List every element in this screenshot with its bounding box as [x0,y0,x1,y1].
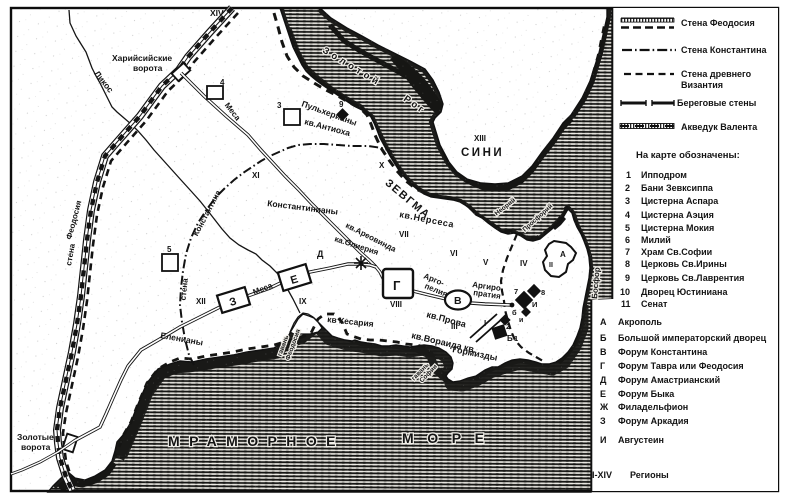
svg-text:IV: IV [520,259,528,268]
svg-text:И: И [532,300,537,309]
svg-text:А: А [560,250,566,259]
svg-text:Акведук Валента: Акведук Валента [681,122,758,132]
svg-text:Церковь Св.Ирины: Церковь Св.Ирины [641,259,727,269]
svg-text:Д: Д [317,249,324,259]
svg-text:Д: Д [600,375,607,385]
svg-text:5: 5 [167,245,172,254]
svg-text:Г: Г [393,278,401,293]
svg-text:X: X [379,161,385,170]
svg-text:7: 7 [625,247,630,257]
svg-text:Цистерна Аэция: Цистерна Аэция [641,210,714,220]
svg-text:Акрополь: Акрополь [618,317,662,327]
svg-text:ворота: ворота [21,442,51,452]
svg-text:XII: XII [196,297,206,306]
svg-text:4: 4 [625,210,630,220]
svg-text:11: 11 [621,299,631,309]
svg-text:6: 6 [625,235,630,245]
svg-text:1: 1 [626,170,631,180]
svg-text:XIII: XIII [474,134,486,143]
svg-text:ворота: ворота [133,63,163,73]
svg-text:МРАМОРНОЕ: МРАМОРНОЕ [168,433,342,449]
svg-text:II: II [549,262,553,269]
svg-text:Ж: Ж [599,402,609,412]
svg-text:8: 8 [541,288,545,297]
svg-text:3: 3 [625,196,630,206]
svg-text:и: и [519,317,523,324]
svg-text:Дворец Юстиниана: Дворец Юстиниана [641,287,728,297]
svg-text:Регионы: Регионы [630,470,669,480]
svg-text:Церковь Св.Лаврентия: Церковь Св.Лаврентия [641,273,744,283]
svg-text:В: В [600,347,607,357]
svg-text:9: 9 [625,273,630,283]
svg-text:I: I [484,319,486,328]
svg-text:Ипподром: Ипподром [641,170,687,180]
svg-text:VII: VII [399,230,409,239]
svg-text:Е: Е [600,389,606,399]
svg-text:8: 8 [625,259,630,269]
svg-text:Форум Тавра или Феодосия: Форум Тавра или Феодосия [618,361,744,371]
svg-text:И: И [600,435,606,445]
svg-text:10: 10 [620,287,630,297]
svg-text:2: 2 [625,183,630,193]
svg-text:Форум Быка: Форум Быка [618,389,675,399]
svg-text:Цистерна Аспара: Цистерна Аспара [641,196,719,206]
svg-text:Цистерна Мокия: Цистерна Мокия [641,223,714,233]
svg-text:Стена Феодосия: Стена Феодосия [681,18,755,28]
svg-text:XI: XI [252,171,260,180]
svg-text:Милий: Милий [641,235,671,245]
svg-text:А: А [600,317,607,327]
svg-text:Сенат: Сенат [641,299,668,309]
svg-text:Стена Константина: Стена Константина [681,45,768,55]
svg-text:Стена древнего: Стена древнего [681,69,752,79]
svg-text:Береговые стены: Береговые стены [677,98,757,108]
svg-text:Большой императорский дворец: Большой императорский дворец [618,333,767,343]
svg-text:2: 2 [506,322,510,331]
svg-text:Филадельфион: Филадельфион [618,402,688,412]
svg-text:9: 9 [339,100,344,109]
svg-text:VIII: VIII [390,300,402,309]
svg-text:V: V [483,258,489,267]
svg-text:XIV: XIV [210,8,224,18]
svg-text:5: 5 [625,223,630,233]
svg-text:Августеин: Августеин [618,435,664,445]
svg-text:В: В [454,295,462,307]
svg-text:Харийсийские: Харийсийские [112,53,172,63]
svg-text:На карте обозначены:: На карте обозначены: [636,150,740,161]
svg-text:7: 7 [514,287,518,296]
svg-text:СИНИ: СИНИ [461,147,504,159]
svg-text:Форум Аркадия: Форум Аркадия [618,416,689,426]
svg-text:Б: Б [600,333,607,343]
svg-text:Храм Св.Софии: Храм Св.Софии [641,247,712,257]
svg-text:Форум Константина: Форум Константина [618,347,708,357]
svg-text:б: б [512,308,517,317]
svg-text:Г: Г [600,361,605,371]
svg-text:МОРЕ: МОРЕ [402,430,498,446]
svg-text:Золотые: Золотые [17,432,54,442]
svg-text:VI: VI [450,249,458,258]
svg-text:Форум Амастрианский: Форум Амастрианский [618,375,720,385]
svg-text:Б: Б [507,334,513,343]
svg-text:Бани Зевксиппа: Бани Зевксиппа [641,183,714,193]
svg-text:1: 1 [514,334,518,343]
svg-text:IX: IX [299,297,307,306]
svg-text:3: 3 [277,101,282,110]
svg-text:I-XIV: I-XIV [592,470,612,480]
svg-text:З: З [600,416,606,426]
svg-text:4: 4 [220,78,225,87]
svg-text:Византия: Византия [681,80,723,90]
